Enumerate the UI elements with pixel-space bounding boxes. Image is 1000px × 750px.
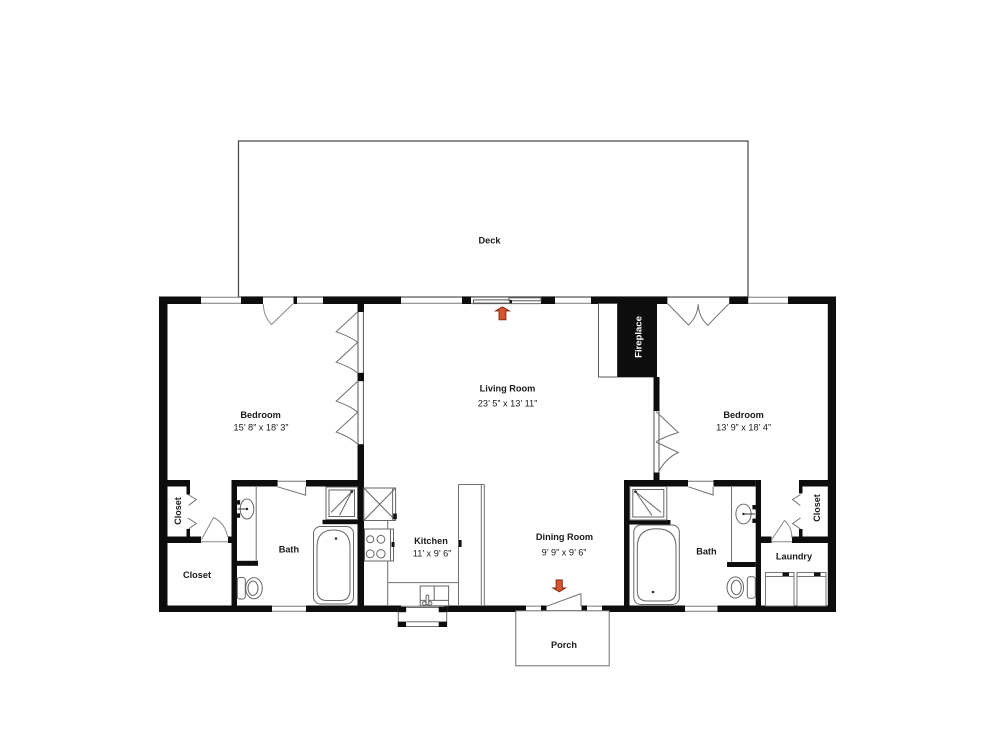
svg-text:Closet: Closet [173,497,183,525]
svg-text:9’ 9” x 9’ 6”: 9’ 9” x 9’ 6” [542,548,587,558]
svg-text:Bedroom: Bedroom [723,410,763,420]
svg-text:Deck: Deck [479,236,502,246]
svg-text:Dining Room: Dining Room [536,532,593,542]
svg-text:Bath: Bath [279,545,300,555]
svg-text:15’ 8” x 18’ 3”: 15’ 8” x 18’ 3” [234,423,289,433]
svg-text:Closet: Closet [183,570,211,580]
svg-text:Fireplace: Fireplace [634,316,645,358]
svg-text:Bath: Bath [696,547,717,557]
svg-text:Closet: Closet [812,494,822,522]
svg-text:11’ x 9’ 6”: 11’ x 9’ 6” [413,549,451,559]
svg-text:Living Room: Living Room [480,384,536,394]
svg-text:23’ 5” x 13’ 11”: 23’ 5” x 13’ 11” [478,399,537,409]
svg-text:Porch: Porch [551,640,577,650]
svg-text:13’ 9” x 18’ 4”: 13’ 9” x 18’ 4” [716,423,771,433]
svg-text:Kitchen: Kitchen [414,536,448,546]
svg-text:Laundry: Laundry [776,552,813,562]
svg-text:Bedroom: Bedroom [240,410,280,420]
